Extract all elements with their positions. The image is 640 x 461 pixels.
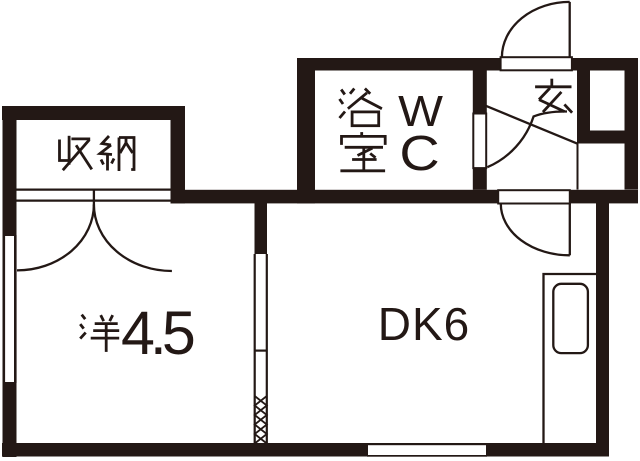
svg-text:DK6: DK6 [378, 298, 470, 350]
svg-text:C: C [399, 126, 439, 181]
svg-text:4.5: 4.5 [121, 299, 194, 367]
